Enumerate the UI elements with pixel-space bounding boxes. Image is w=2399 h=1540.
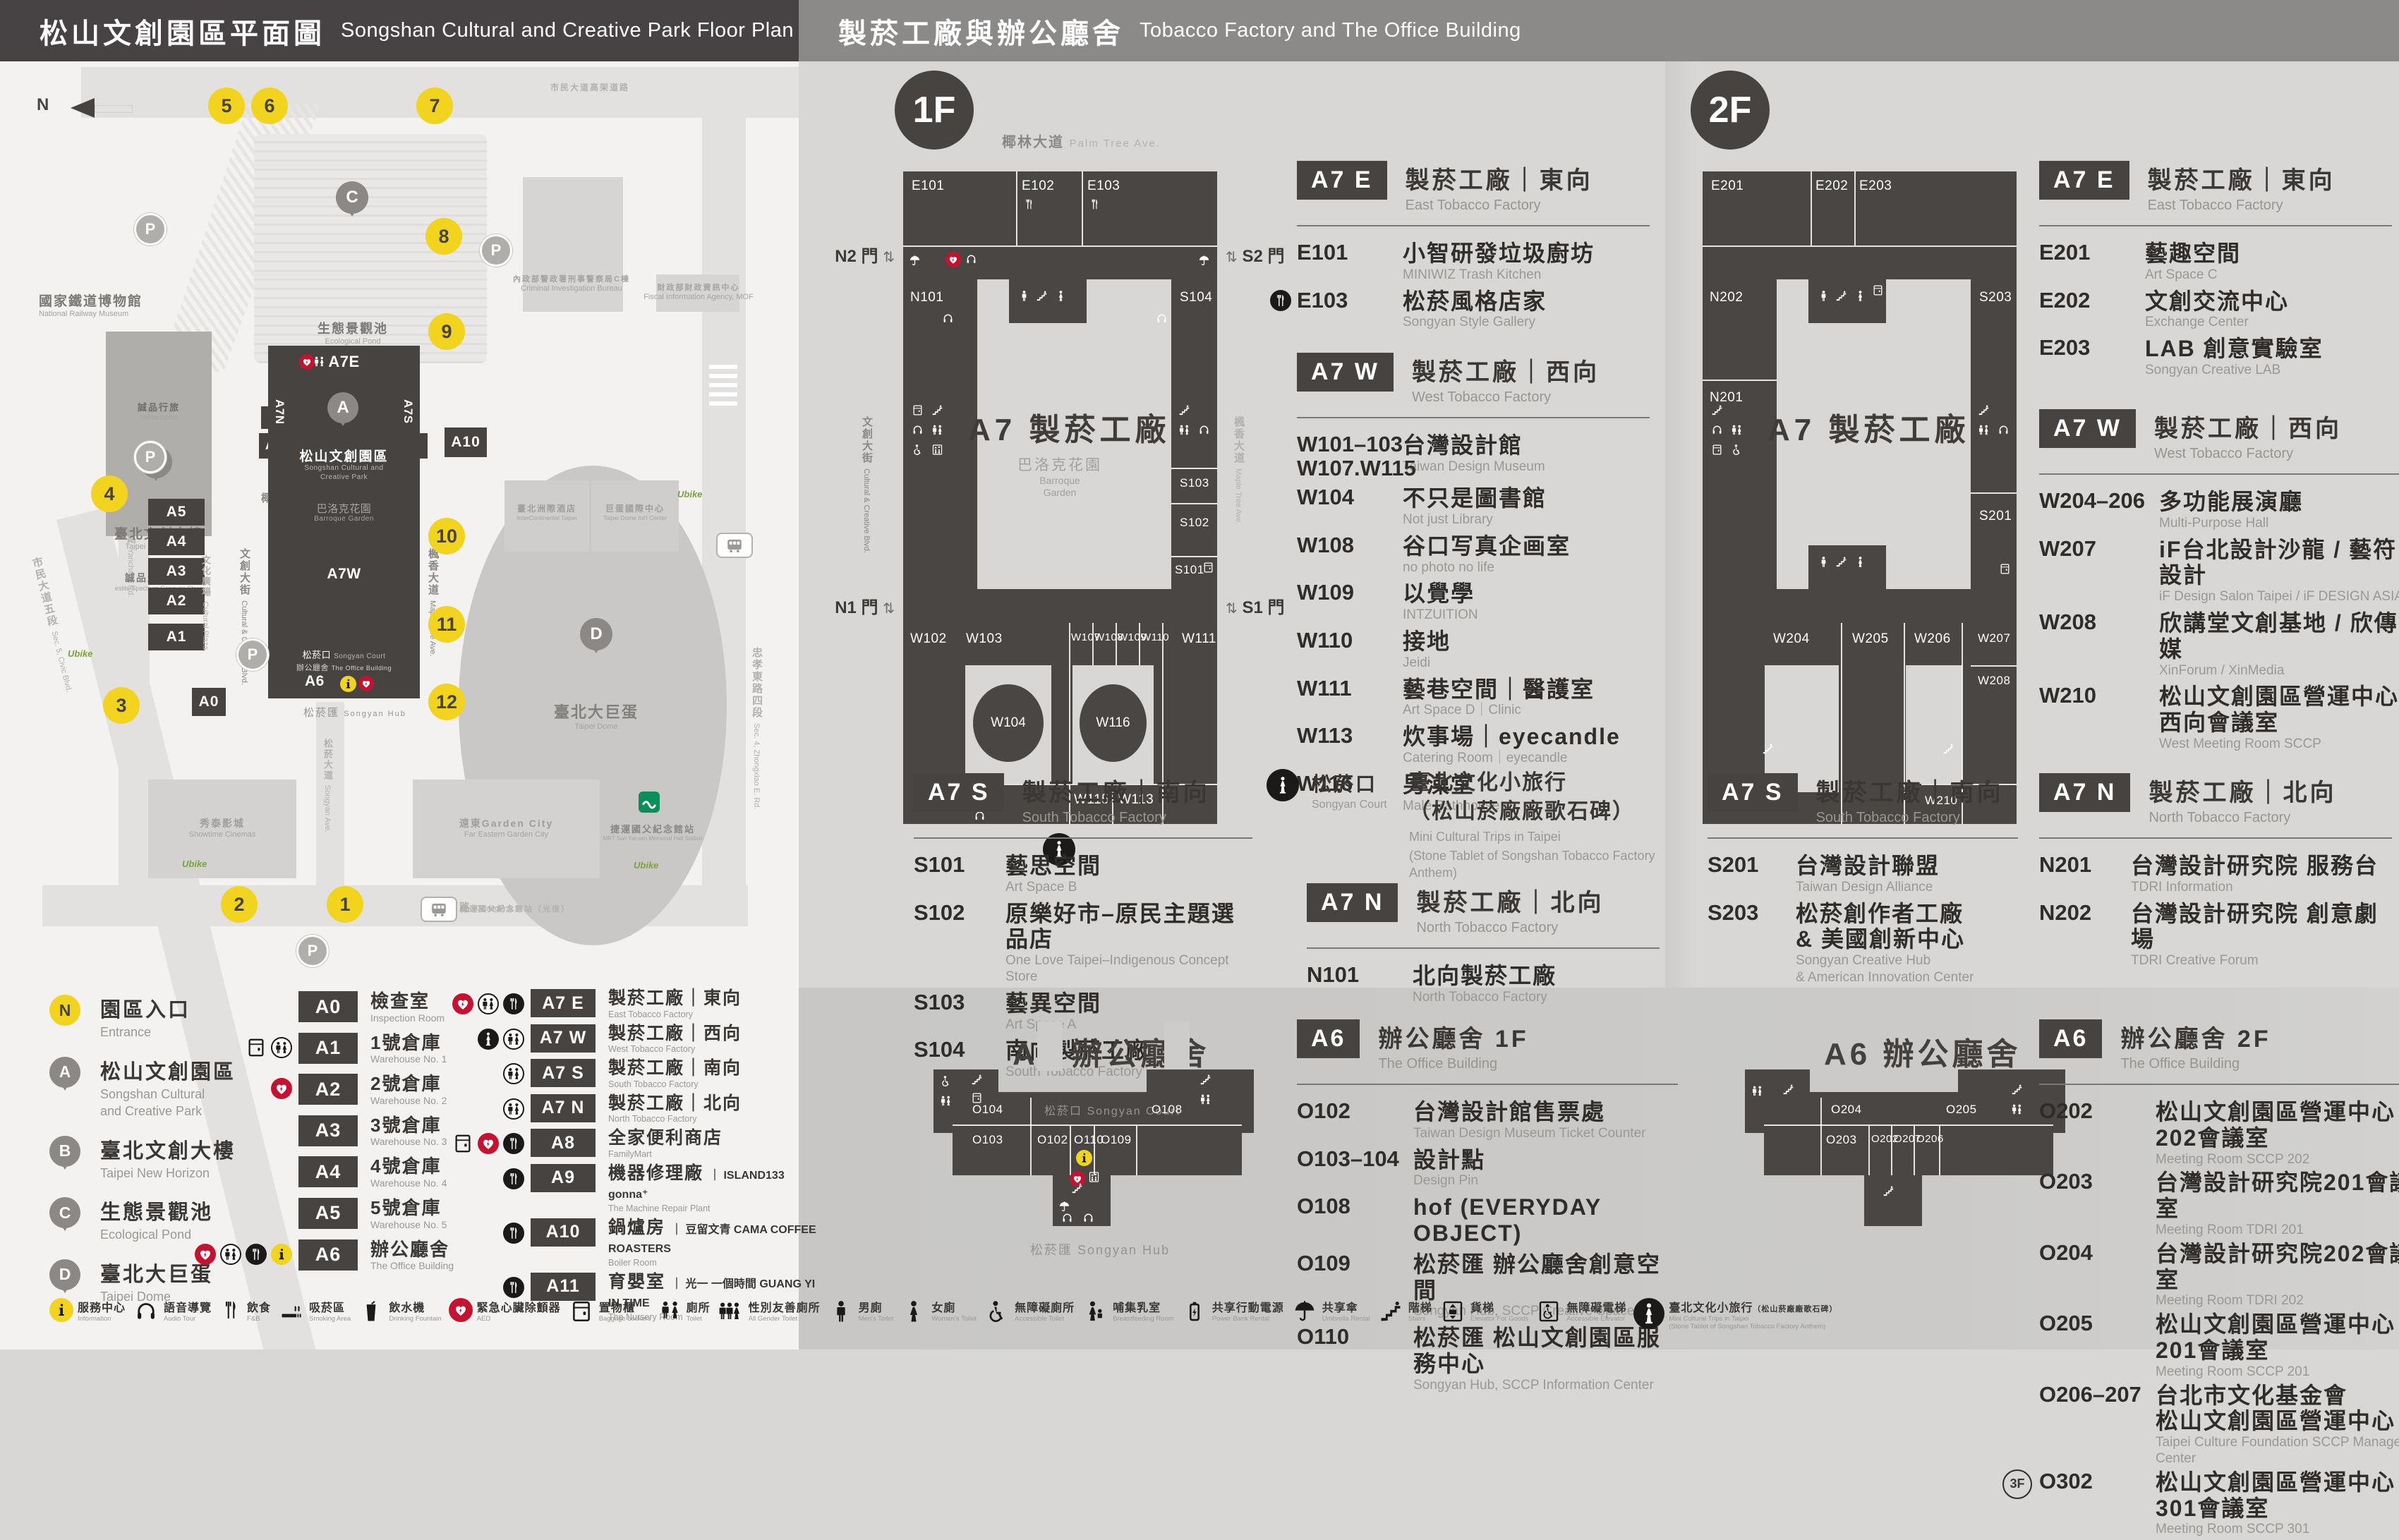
room-label: E202 bbox=[1815, 178, 1848, 194]
room-list: N101 北向製菸工廠North Tobacco Factory bbox=[1307, 963, 1660, 1006]
section-a7n-1f: A7 N 製菸工廠｜北向North Tobacco Factory N101 北… bbox=[1307, 883, 1660, 1011]
floor-plan-1f: E101 E102 E103 N101 S104 S103 S102 S101 … bbox=[903, 171, 1217, 824]
toilet-icon bbox=[1978, 424, 1990, 436]
aed-icon bbox=[452, 993, 473, 1014]
facility-zh-text: 女廁 bbox=[931, 1302, 955, 1314]
facility-zh-text: 階梯 bbox=[1408, 1302, 1432, 1314]
facility-zh: 語音導覽 bbox=[164, 1298, 212, 1315]
place-en: InterContinental Taipei bbox=[504, 514, 589, 521]
room-entry: N101 北向製菸工廠North Tobacco Factory bbox=[1307, 963, 1660, 1006]
facility-en: Information bbox=[78, 1315, 126, 1323]
room-icons bbox=[1270, 290, 1291, 311]
fnb-icon bbox=[503, 1168, 524, 1189]
facility-item: 性別友善廁所 All Gender Toilet bbox=[718, 1298, 821, 1327]
legend-en: Inspection Room bbox=[370, 1012, 445, 1024]
section-title-zh: 製菸工廠｜南向 bbox=[1816, 773, 2004, 808]
room-entry: E103 松菸風格店家Songyan Style Gallery bbox=[1297, 289, 1650, 332]
legend-en: Warehouse No. 2 bbox=[370, 1095, 447, 1106]
legend-zh: 辦公廳舍 bbox=[370, 1239, 454, 1260]
room-label: W205 bbox=[1852, 631, 1889, 647]
legend-building-row: A8 全家便利商店FamilyMart bbox=[531, 1129, 827, 1159]
room-label: E102 bbox=[1022, 178, 1054, 194]
facility-zh-text: 語音導覽 bbox=[164, 1302, 212, 1314]
facility-icon-slot bbox=[1291, 1298, 1318, 1327]
facility-icon-slot bbox=[718, 1298, 744, 1327]
divider bbox=[1030, 1098, 1032, 1175]
facility-zh-text: 無障礙廁所 bbox=[1015, 1302, 1075, 1314]
section-title-zh: 製菸工廠｜西向 bbox=[1412, 353, 1600, 387]
street-en: Cultural & Creative Blvd. bbox=[862, 468, 871, 553]
legend-building-row: A7 N 製菸工廠｜北向North Tobacco Factory bbox=[531, 1094, 827, 1124]
facility-zh-text: 共享傘 bbox=[1322, 1302, 1358, 1314]
room-name-en: One Love Taipei–Indigenous Concept Store bbox=[1005, 953, 1252, 986]
audio-icon bbox=[1998, 424, 2010, 436]
legend-en: Warehouse No. 3 bbox=[370, 1136, 447, 1147]
gate-label: N1 門 bbox=[835, 598, 878, 617]
place-zh: 生態景觀池 bbox=[318, 322, 388, 336]
legend-zh: 園區入口 bbox=[100, 993, 191, 1023]
room-label: W110 bbox=[1141, 631, 1169, 643]
baroque-zh: 巴洛克花園 bbox=[268, 501, 420, 516]
divider bbox=[1297, 225, 1650, 226]
legend-zh-text: 機器修理廠 bbox=[608, 1163, 703, 1183]
room-name-en: Design Pin bbox=[1413, 1173, 1485, 1189]
building-a7n: A7N bbox=[272, 399, 286, 425]
road-zh: 忠孝東路四段 bbox=[751, 647, 763, 719]
room-name-zh: 設計點 bbox=[1413, 1147, 1485, 1173]
road-label-cultural-plaza: 文化廣場 Cultural Plaza bbox=[199, 555, 212, 650]
powerbank-icon bbox=[1181, 1298, 1208, 1325]
legend-building-badge: A10 bbox=[531, 1218, 596, 1247]
room-code: E103 bbox=[1297, 289, 1403, 313]
legend-building-badge: A9 bbox=[531, 1164, 596, 1192]
facility-item: 共享傘 Umbrella Rental bbox=[1291, 1298, 1370, 1327]
divider bbox=[953, 1124, 1242, 1126]
facility-en: Breastfeeding Room bbox=[1113, 1315, 1174, 1323]
room-entry: S101 藝思空間Art Space B bbox=[914, 853, 1252, 896]
legend-en: West Tobacco Factory bbox=[608, 1044, 742, 1054]
room-name-en2: & American Innovation Center bbox=[1796, 970, 1974, 986]
hub-label: 松菸匯 Songyan Hub bbox=[1030, 1240, 1170, 1259]
audio-icon bbox=[1198, 424, 1210, 436]
north-arrow: N bbox=[37, 95, 49, 115]
legend-zh: 機器修理廠｜ ISLAND133 gonna⁺ bbox=[608, 1164, 827, 1203]
room-entry: O110 松菸匯 松山文創園區服務中心Songyan Hub, SCCP Inf… bbox=[1297, 1325, 1678, 1393]
section-title-en: The Office Building bbox=[1378, 1056, 1528, 1072]
locker-icon bbox=[1872, 284, 1884, 296]
showtime-label: 秀泰影城Showtime Cinemas bbox=[162, 816, 282, 839]
section-badge: A7 S bbox=[1708, 773, 1798, 812]
parking-icon: P bbox=[134, 213, 167, 245]
legend-zh-text: 全家便利商店 bbox=[608, 1128, 723, 1148]
room-name-zh: 北向製菸工廠 bbox=[1413, 963, 1557, 989]
plan-corridor bbox=[1703, 589, 2017, 623]
facility-item: 語音導覽 Audio Tour bbox=[133, 1298, 212, 1327]
divider bbox=[1868, 1126, 1870, 1175]
page-title-en: Songshan Cultural and Creative Park Floo… bbox=[341, 19, 794, 42]
facility-item: 女廁 Women's Toilet bbox=[900, 1298, 977, 1327]
room-name-zh: 松菸創作者工廠 bbox=[1796, 901, 1974, 927]
room-name-en: TDRI Creative Forum bbox=[2131, 953, 2392, 969]
garden-en: Garden bbox=[989, 487, 1130, 499]
room-name-en: iF Design Salon Taipei / iF DESIGN ASIA bbox=[2159, 589, 2399, 605]
room-entry: W111 藝巷空間｜醫護室Art Space D｜Clinic bbox=[1297, 677, 1650, 720]
audio-icon bbox=[1156, 313, 1168, 325]
room-name-zh: 不只是圖書館 bbox=[1403, 485, 1547, 511]
section-title-zh: 製菸工廠｜西向 bbox=[2154, 409, 2342, 444]
park-name-zh: 松山文創園區 bbox=[268, 446, 420, 465]
legend-building-row: A7 W 製菸工廠｜西向West Tobacco Factory bbox=[531, 1024, 827, 1055]
building-a10: A10 bbox=[445, 428, 487, 457]
room-label: S103 bbox=[1180, 476, 1209, 490]
place-en: Taipei Dome Int'l Center bbox=[591, 514, 679, 521]
legend-building-row: A7 E 製菸工廠｜東向East Tobacco Factory bbox=[531, 989, 827, 1019]
section-title-zh: 製菸工廠｜東向 bbox=[2148, 161, 2335, 195]
section-title-en: North Tobacco Factory bbox=[2149, 810, 2336, 826]
room-name-zh: 台灣設計研究院 創意劇場 bbox=[2131, 901, 2392, 953]
stair-tower bbox=[1164, 1021, 1190, 1071]
room-code: O206–207 bbox=[2039, 1383, 2156, 1407]
toilet-icon bbox=[1751, 1085, 1763, 1097]
room-w116: W116 bbox=[1080, 684, 1147, 762]
facility-en: Umbrella Rental bbox=[1322, 1315, 1370, 1323]
office-label: 辦公廳舍 The Office Building bbox=[268, 662, 420, 673]
entrance-marker-10: 10 bbox=[428, 518, 465, 554]
building-a2: A2 bbox=[148, 588, 205, 614]
room-name-en: Taiwan Design Museum bbox=[1403, 459, 1545, 475]
room-label: N202 bbox=[1710, 290, 1743, 305]
legend-building-badge: A0 bbox=[298, 991, 358, 1022]
facility-zh-text: 共享行動電源 bbox=[1212, 1302, 1284, 1314]
place-en: Criminal Investigation Bureau bbox=[494, 284, 649, 293]
audio-icon bbox=[965, 253, 977, 265]
legend-building-badge: A3 bbox=[298, 1115, 358, 1146]
room-name-zh: 原樂好市–原民主題選品店 bbox=[1005, 901, 1252, 953]
room-label: O108 bbox=[1152, 1103, 1183, 1117]
facility-zh-text: 飲水機 bbox=[389, 1302, 425, 1314]
divider bbox=[1136, 1126, 1137, 1175]
stairs-icon bbox=[1178, 404, 1190, 416]
facility-icon-slot bbox=[1377, 1298, 1404, 1327]
legend-pin-icon: B bbox=[49, 1136, 80, 1167]
room-entry: W204–206 多功能展演廳Multi-Purpose Hall bbox=[2039, 489, 2399, 532]
room-code: W110 bbox=[1297, 629, 1403, 653]
room-entry: N201 台灣設計研究院 服務台TDRI Information bbox=[2039, 853, 2392, 896]
road-en: Sec. 5, Civic Blvd. bbox=[50, 631, 73, 693]
divider bbox=[1297, 417, 1650, 418]
legend-building-badge: A11 bbox=[531, 1273, 596, 1301]
locker-icon bbox=[1202, 562, 1214, 574]
songyan-court-statue-icon bbox=[1267, 769, 1299, 801]
facility-zh: 臺北文化小旅行（松山菸廠廠歌石碑） bbox=[1669, 1298, 1837, 1315]
eslite-hotel-label: 誠品行旅eslite hotel bbox=[113, 400, 205, 422]
section-badge: A7 E bbox=[1297, 161, 1387, 200]
room-name-en: TDRI Information bbox=[2131, 880, 2379, 896]
facility-zh: 置物櫃 bbox=[599, 1298, 651, 1315]
statue-icon bbox=[478, 1029, 499, 1050]
entrance-marker-1: 1 bbox=[327, 886, 363, 923]
ubike-logo: Ubike bbox=[68, 648, 92, 659]
stair-tower bbox=[1037, 1021, 1063, 1071]
place-zh: 財政部財政資訊中心 bbox=[658, 284, 740, 292]
road-zh: 楓香大道 bbox=[427, 548, 439, 596]
toilet-icon bbox=[1199, 1093, 1211, 1105]
facility-icon-slot bbox=[1082, 1298, 1108, 1327]
legend-zh: 2號倉庫 bbox=[370, 1074, 447, 1094]
legend-building-badge: A2 bbox=[298, 1074, 358, 1105]
accessible_elevator-icon bbox=[1535, 1298, 1562, 1325]
section-title-zh: 製菸工廠｜北向 bbox=[1416, 883, 1604, 918]
facility-item: 階梯 Stairs bbox=[1377, 1298, 1432, 1327]
room-list: W101–103W107.W115 台灣設計館Taiwan Design Mus… bbox=[1297, 432, 1650, 814]
room-name-zh: 谷口写真企画室 bbox=[1403, 533, 1571, 559]
nursing-icon bbox=[1082, 1298, 1108, 1325]
fnb-icon bbox=[503, 1277, 524, 1298]
facility-zh: 飲食 bbox=[247, 1298, 271, 1315]
room-name-zh: 松山文創園區營運中心301會議室 bbox=[2156, 1469, 2399, 1522]
legend-row-icons bbox=[246, 1037, 292, 1058]
legend-pin-row: A 松山文創園區Songshan Culturaland Creative Pa… bbox=[49, 1055, 282, 1120]
audio-icon bbox=[1082, 1212, 1094, 1224]
room-name-en: Art Space B bbox=[1005, 880, 1101, 896]
legend-pin-icon: A bbox=[49, 1057, 80, 1088]
section-badge: A7 S bbox=[914, 773, 1004, 812]
room-name-en: Meeting Room SCCP 202 bbox=[2156, 1152, 2399, 1168]
facility-icon-slot bbox=[358, 1298, 385, 1327]
section-badge: A6 bbox=[1297, 1019, 1360, 1058]
aed-icon bbox=[945, 252, 961, 267]
facility-en: Mini Cultural Trips in Taipei bbox=[1669, 1315, 1837, 1323]
facility-icon-slot bbox=[1439, 1298, 1466, 1327]
legend-zh-text: 製菸工廠｜南向 bbox=[608, 1058, 742, 1078]
legend-en: South Tobacco Factory bbox=[608, 1079, 742, 1089]
aed-icon bbox=[195, 1244, 216, 1265]
parking-icon: P bbox=[296, 935, 329, 967]
road-en: Songyan Ave. bbox=[323, 785, 332, 833]
a6-plan-1f: A6 辦公廳舍 O104 松菸口 Songyan Court O108 O103… bbox=[931, 1021, 1284, 1275]
legend-zh-text: 製菸工廠｜西向 bbox=[608, 1024, 742, 1043]
room-code: S203 bbox=[1708, 901, 1796, 925]
room-label: W206 bbox=[1914, 631, 1951, 647]
bus-stop-icon bbox=[421, 897, 457, 922]
divider bbox=[2039, 473, 2399, 475]
facility-zh-text: 無障礙電梯 bbox=[1566, 1302, 1626, 1314]
room-name-en: West Meeting Room SCCP bbox=[2159, 736, 2399, 753]
facility-icon-slot bbox=[658, 1298, 682, 1324]
facility-item: 臺北文化小旅行（松山菸廠廠歌石碑） Mini Cultural Trips in… bbox=[1633, 1298, 1837, 1330]
metro-logo bbox=[639, 792, 660, 813]
bus-stop-icon bbox=[716, 533, 753, 558]
place-en: eslite hotel bbox=[113, 413, 205, 422]
facility-en: Smoking Area bbox=[309, 1315, 351, 1323]
room-name-en: no photo no life bbox=[1403, 560, 1571, 576]
facility-item: 飲水機 Drinking Fountain bbox=[358, 1298, 441, 1327]
gate-label: N2 門 bbox=[835, 247, 878, 266]
entrance-marker-2: 2 bbox=[221, 886, 258, 923]
facility-item: 無障礙電梯 Accessible Elevator bbox=[1535, 1298, 1626, 1327]
fnb-icon bbox=[1023, 198, 1035, 210]
room-entry: O202 松山文創園區營運中心202會議室Meeting Room SCCP 2… bbox=[2039, 1099, 2399, 1168]
stairs-icon bbox=[1835, 556, 1847, 568]
section-title-zh: 製菸工廠｜南向 bbox=[1022, 773, 1210, 808]
room-name-zh2: & 美國創新中心 bbox=[1796, 926, 1974, 952]
facility-item: 共享行動電源 Power Bank Rental bbox=[1181, 1298, 1284, 1327]
toilet-icon bbox=[503, 1029, 524, 1050]
room-entry: W208 欣講堂文創基地 / 欣傳媒XinForum / XinMedia bbox=[2039, 610, 2399, 679]
stairs-icon bbox=[971, 1074, 983, 1086]
room-name-en: MINIWIZ Trash Kitchen bbox=[1403, 267, 1595, 284]
room-name-en: Jeidi bbox=[1403, 655, 1451, 672]
aed-icon bbox=[449, 1298, 473, 1322]
facility-item: 哺集乳室 Breastfeeding Room bbox=[1082, 1298, 1174, 1327]
room-name-en: XinForum / XinMedia bbox=[2159, 663, 2399, 679]
room-label: O206 bbox=[1916, 1133, 1944, 1145]
accessible-icon bbox=[940, 1075, 952, 1087]
room-label: E201 bbox=[1711, 178, 1744, 194]
legend-en: The Machine Repair Plant bbox=[608, 1203, 827, 1213]
building-a7w: A7W bbox=[268, 566, 420, 583]
stairs-icon bbox=[1883, 1185, 1895, 1197]
facility-icon-slot bbox=[278, 1298, 305, 1327]
facility-en: Audio Tour bbox=[164, 1315, 212, 1323]
locker-icon bbox=[912, 404, 924, 416]
entrance-marker-5: 5 bbox=[208, 87, 245, 124]
divider bbox=[1171, 503, 1217, 504]
facility-en: All Gender Toilet bbox=[749, 1315, 821, 1323]
road-label-civic: 市民大道五段 Sec. 5, Civic Blvd. bbox=[29, 555, 77, 693]
facility-zh: 貨梯 bbox=[1470, 1298, 1528, 1315]
divider bbox=[914, 837, 1252, 839]
toilet-icon bbox=[658, 1298, 682, 1322]
legend-zh: 松山文創園區 bbox=[100, 1055, 236, 1085]
divider bbox=[1971, 492, 2017, 494]
section-title-zh: 辦公廳舍 1F bbox=[1378, 1019, 1528, 1054]
legend-row-icons bbox=[503, 1223, 524, 1244]
facility-en: Power Bank Rental bbox=[1212, 1315, 1284, 1323]
legend-row-icons bbox=[271, 1078, 292, 1099]
court-label: 松菸口 Songyan Court bbox=[268, 648, 420, 661]
toilet-icon bbox=[478, 993, 499, 1014]
room-entry: O203 台灣設計研究院201會議室Meeting Room TDRI 201 bbox=[2039, 1170, 2399, 1238]
cib-label: 內政部警政署刑事警察局C棟Criminal Investigation Bure… bbox=[494, 273, 649, 293]
section-title-zh: 製菸工廠與辦公廳舍 bbox=[838, 11, 1124, 51]
court-en1: Mini Cultural Trips in Taipei bbox=[1409, 829, 1662, 845]
place-en: National Railway Museum bbox=[39, 310, 143, 318]
legend-zh: 1號倉庫 bbox=[370, 1033, 447, 1053]
legend-building-row: A6 辦公廳舍The Office Building bbox=[298, 1239, 531, 1272]
facility-en: Toilet bbox=[687, 1315, 711, 1323]
legend-building-badge: A4 bbox=[298, 1156, 358, 1187]
north-arrow-triangle bbox=[61, 98, 95, 118]
building-a0: A0 bbox=[192, 688, 226, 716]
section-title-en: West Tobacco Factory bbox=[2154, 446, 2342, 462]
road-zh: 文創大街 bbox=[238, 548, 250, 596]
locker-icon bbox=[568, 1298, 595, 1325]
info-icon bbox=[1076, 1150, 1092, 1166]
room-name-zh: 松菸匯 松山文創園區服務中心 bbox=[1413, 1325, 1678, 1377]
section-badge: A7 N bbox=[2039, 773, 2130, 812]
room-entry: E203 LAB 創意實驗室Songyan Creative LAB bbox=[2039, 336, 2392, 379]
room-name-zh2: 松山文創園區營運中心 bbox=[2156, 1408, 2399, 1434]
room-name-zh: 炊事場｜eyecandle bbox=[1403, 724, 1621, 750]
section-title-en: Tobacco Factory and The Office Building bbox=[1140, 19, 1521, 42]
legend-building-row: A9 機器修理廠｜ ISLAND133 gonna⁺The Machine Re… bbox=[531, 1164, 827, 1213]
accessible-icon bbox=[912, 444, 924, 456]
facility-zh-text: 緊急心臟除顫器 bbox=[477, 1302, 561, 1314]
facility-en: Accessible Elevator bbox=[1566, 1315, 1626, 1323]
room-code: O109 bbox=[1297, 1251, 1413, 1275]
gate-n2: N2 門 ⇅ bbox=[835, 242, 895, 267]
gate-n1: N1 門 ⇅ bbox=[835, 593, 895, 618]
legend-zh-text: 製菸工廠｜東向 bbox=[608, 988, 742, 1008]
facility-zh-text: 吸菸區 bbox=[309, 1302, 345, 1314]
room-name-en: Taiwan Design Alliance bbox=[1796, 880, 1940, 896]
place-en: Far Eastern Garden City bbox=[430, 830, 582, 839]
room-label: W116 bbox=[1096, 715, 1130, 731]
room-entry: S201 台灣設計聯盟Taiwan Design Alliance bbox=[1708, 853, 2018, 896]
facility-zh: 性別友善廁所 bbox=[749, 1298, 821, 1315]
court-en: Songyan Court bbox=[334, 653, 385, 660]
section-title-en: East Tobacco Factory bbox=[2148, 198, 2335, 214]
locker-icon bbox=[246, 1037, 267, 1058]
a6-plan-title: A6 辦公廳舍 bbox=[1824, 1029, 2021, 1074]
room-entry: W207 iF台北設計沙龍 / 藝符設計iF Design Salon Taip… bbox=[2039, 537, 2399, 605]
audio-icon bbox=[1711, 424, 1723, 436]
header-right: 製菸工廠與辦公廳舍 Tobacco Factory and The Office… bbox=[799, 0, 2399, 61]
room-name-en: Meeting Room SCCP 301 bbox=[2156, 1522, 2399, 1538]
facility-en: Men's Toilet bbox=[859, 1315, 894, 1323]
dome-intl-label: 巨蛋國際中心Taipei Dome Int'l Center bbox=[591, 502, 679, 521]
room-code: E101 bbox=[1297, 241, 1403, 265]
elevator-icon bbox=[1088, 1171, 1100, 1183]
divider bbox=[1854, 171, 1856, 245]
crosswalk bbox=[709, 365, 737, 407]
divider bbox=[1070, 1126, 1071, 1175]
legend-building-row: A2 2號倉庫Warehouse No. 2 bbox=[298, 1074, 531, 1106]
room-name-en: Art Space D｜Clinic bbox=[1403, 703, 1595, 719]
facility-icon-slot bbox=[133, 1298, 159, 1327]
legend-row-icons bbox=[503, 1277, 524, 1298]
room-label: O102 bbox=[1037, 1133, 1068, 1147]
facility-item: 飲食 F&B bbox=[219, 1298, 271, 1324]
facility-en: Accessible Toilet bbox=[1015, 1315, 1075, 1323]
room-label: S101 bbox=[1175, 563, 1204, 577]
accessible-icon bbox=[1731, 444, 1743, 456]
legend-pin-icon: N bbox=[49, 995, 80, 1026]
facility-zh-text: 服務中心 bbox=[78, 1302, 126, 1314]
place-en: Showtime Cinemas bbox=[162, 830, 282, 839]
room-name-zh: 台北市文化基金會 bbox=[2156, 1383, 2399, 1409]
room-code: O203 bbox=[2039, 1170, 2156, 1194]
legend-en: Warehouse No. 4 bbox=[370, 1177, 447, 1189]
divider bbox=[1092, 623, 1094, 665]
audio-icon bbox=[942, 313, 954, 325]
room-code: W104 bbox=[1297, 485, 1403, 509]
place-zh: 巨蛋國際中心 bbox=[605, 504, 665, 514]
facility-zh-text: 飲食 bbox=[247, 1302, 271, 1314]
legend-zh: 鍋爐房｜ 豆留文青 CAMA COFFEE ROASTERS bbox=[608, 1218, 827, 1257]
section-a6-2f: A6 辦公廳舍 2FThe Office Building O202 松山文創園… bbox=[2039, 1019, 2399, 1540]
divider bbox=[2039, 1084, 2399, 1085]
facility-zh: 吸菸區 bbox=[309, 1298, 351, 1315]
legend-en: Warehouse No. 5 bbox=[370, 1219, 447, 1230]
room-label: O203 bbox=[1826, 1133, 1857, 1147]
divider bbox=[2039, 837, 2392, 839]
info-icon bbox=[49, 1298, 73, 1322]
fnb-icon bbox=[1270, 290, 1291, 311]
stairs-icon bbox=[1942, 743, 1954, 755]
stairs-icon bbox=[1071, 1182, 1083, 1194]
